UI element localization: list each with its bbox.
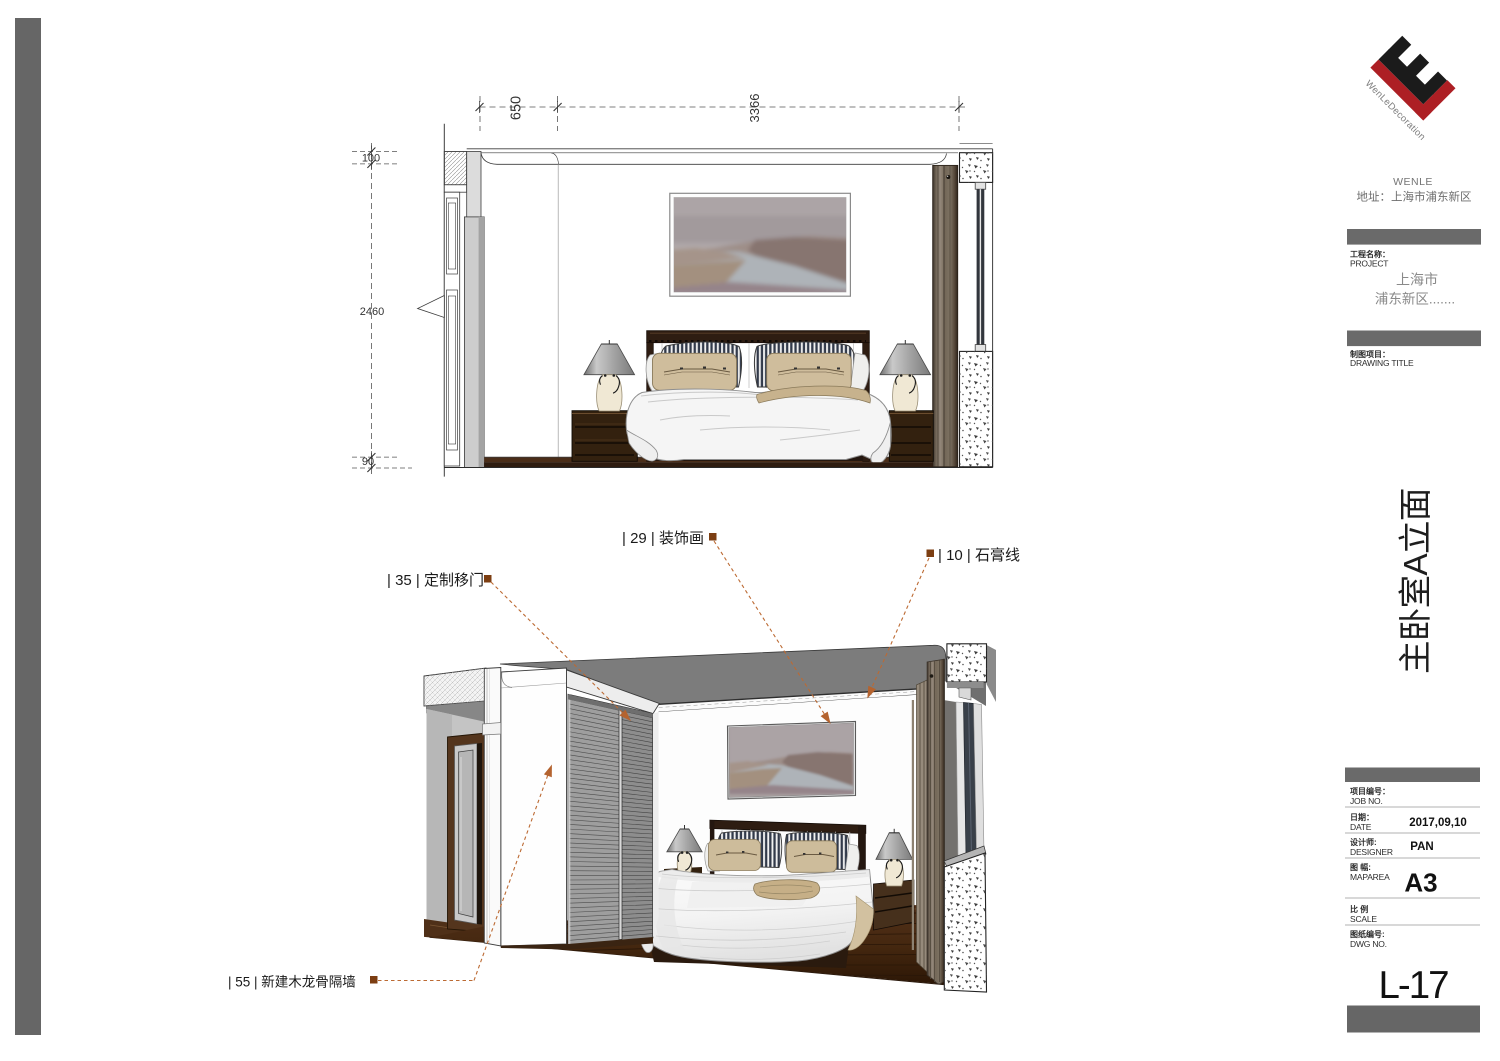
svg-text:PROJECT: PROJECT (1350, 259, 1388, 269)
svg-text:DWG NO.: DWG NO. (1350, 939, 1387, 949)
svg-text:DATE: DATE (1350, 822, 1372, 832)
svg-text:| 29 | 装饰画: | 29 | 装饰画 (622, 530, 704, 547)
svg-text:| 10 | 石膏线: | 10 | 石膏线 (938, 547, 1020, 564)
svg-text:图纸编号:: 图纸编号: (1350, 929, 1385, 939)
svg-text:地址：上海市浦东新区: 地址：上海市浦东新区 (1357, 190, 1472, 204)
svg-text:DESIGNER: DESIGNER (1350, 847, 1393, 857)
svg-text:PAN: PAN (1410, 841, 1433, 853)
svg-text:MAPAREA: MAPAREA (1350, 872, 1390, 882)
svg-text:工程名称：: 工程名称： (1350, 249, 1390, 259)
svg-text:上海市: 上海市 (1396, 272, 1438, 288)
svg-text:DRAWING TITLE: DRAWING TITLE (1350, 358, 1414, 368)
svg-text:图 幅:: 图 幅: (1350, 862, 1371, 872)
svg-text:浦东新区.......: 浦东新区....... (1375, 292, 1455, 307)
svg-text:L-17: L-17 (1378, 964, 1448, 1007)
svg-text:比 例: 比 例 (1350, 904, 1368, 914)
svg-text:WENLE: WENLE (1393, 176, 1433, 188)
svg-text:SCALE: SCALE (1350, 914, 1377, 924)
svg-text:设计师:: 设计师: (1350, 837, 1377, 847)
svg-text:90: 90 (362, 456, 374, 468)
svg-text:650: 650 (509, 96, 525, 120)
svg-text:100: 100 (362, 153, 380, 165)
svg-text:| 35 | 定制移门: | 35 | 定制移门 (387, 572, 484, 589)
svg-text:3366: 3366 (747, 94, 762, 123)
svg-text:| 55 | 新建木龙骨隔墙: | 55 | 新建木龙骨隔墙 (228, 975, 356, 990)
svg-text:A3: A3 (1404, 868, 1437, 898)
svg-text:项目编号：: 项目编号： (1350, 786, 1390, 796)
svg-text:2460: 2460 (360, 306, 384, 318)
svg-text:JOB NO.: JOB NO. (1350, 796, 1383, 806)
svg-text:日期：: 日期： (1350, 812, 1374, 822)
svg-text:主卧室A立面: 主卧室A立面 (1398, 488, 1435, 674)
svg-text:2017,09,10: 2017,09,10 (1409, 817, 1467, 829)
